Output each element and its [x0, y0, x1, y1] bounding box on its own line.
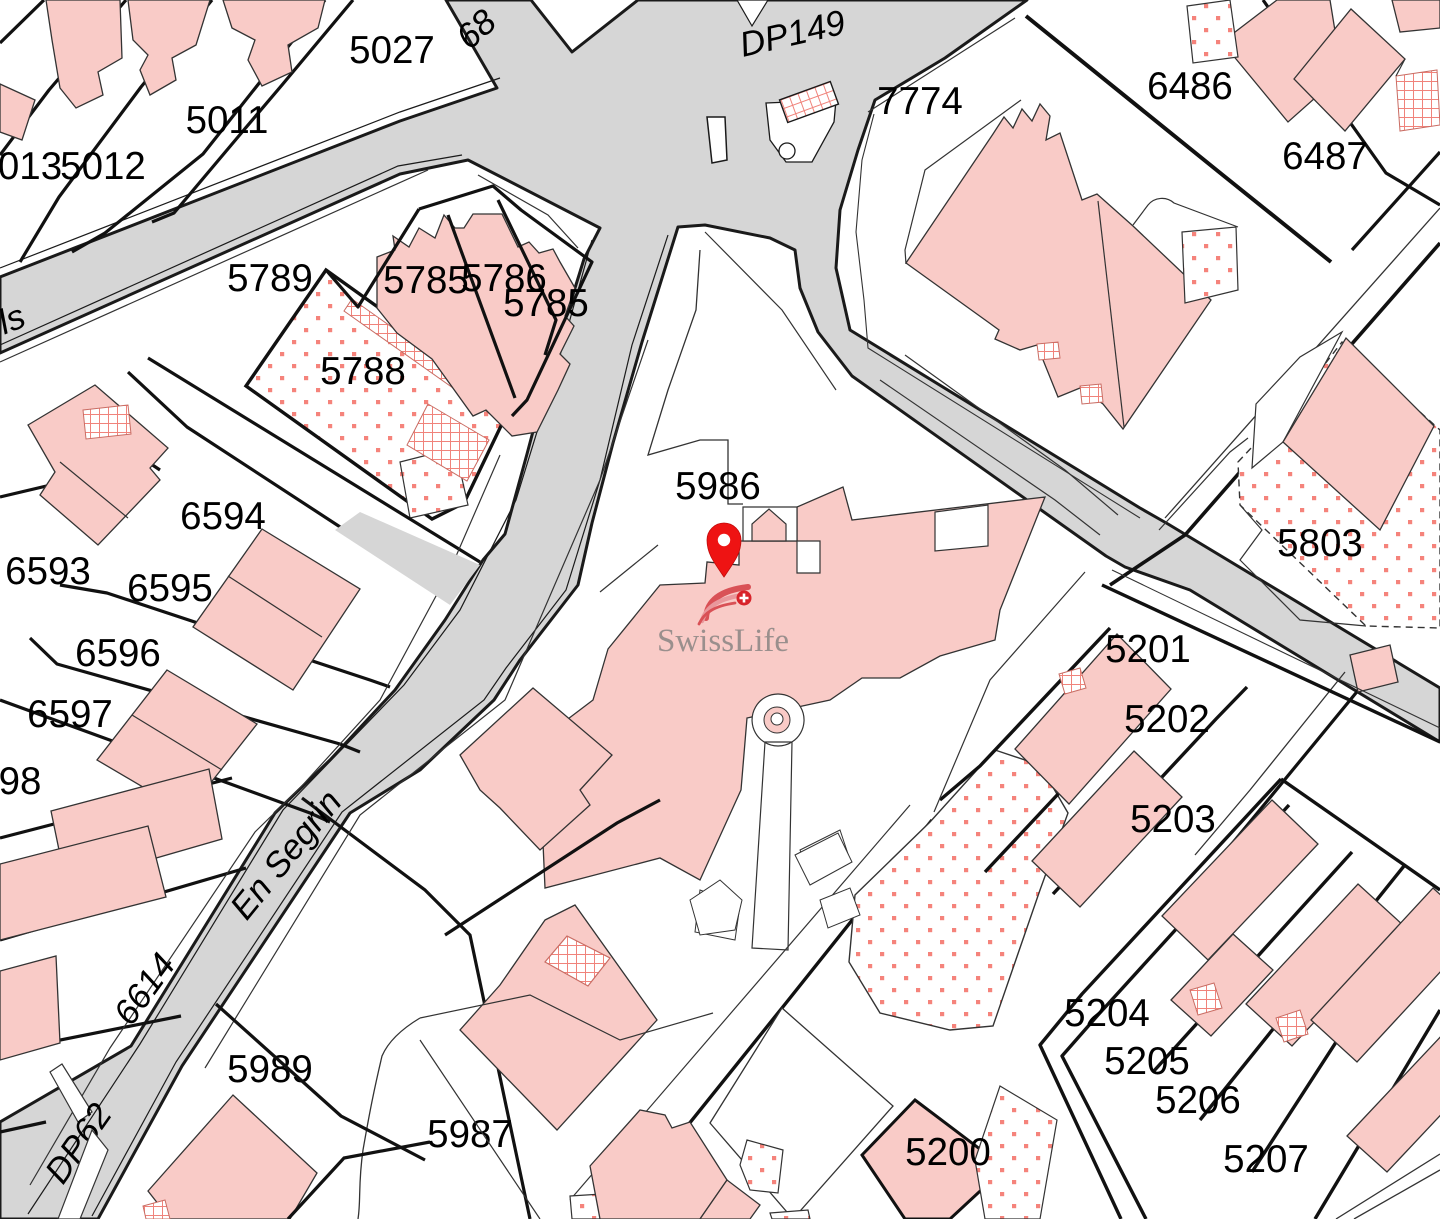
svg-text:98: 98 [0, 760, 41, 803]
svg-text:5204: 5204 [1064, 992, 1150, 1035]
svg-text:5207: 5207 [1223, 1138, 1309, 1181]
svg-text:5202: 5202 [1124, 698, 1210, 741]
svg-text:5789: 5789 [227, 257, 313, 300]
svg-text:6487: 6487 [1282, 135, 1368, 178]
svg-text:5206: 5206 [1155, 1079, 1241, 1122]
svg-text:6595: 6595 [127, 567, 213, 610]
svg-text:5205: 5205 [1104, 1040, 1190, 1083]
svg-text:6593: 6593 [5, 550, 91, 593]
svg-text:5785: 5785 [383, 259, 469, 302]
svg-text:5987: 5987 [427, 1113, 513, 1156]
svg-text:7774: 7774 [877, 80, 963, 123]
svg-text:5027: 5027 [349, 29, 435, 72]
svg-text:6594: 6594 [180, 495, 266, 538]
svg-text:5011: 5011 [186, 99, 269, 142]
svg-text:5012: 5012 [60, 145, 146, 188]
svg-text:5201: 5201 [1105, 628, 1191, 671]
svg-text:5785: 5785 [503, 282, 589, 325]
svg-text:SwissLife: SwissLife [657, 623, 789, 659]
svg-text:5200: 5200 [905, 1131, 991, 1174]
svg-text:5788: 5788 [320, 350, 406, 393]
svg-text:6596: 6596 [75, 632, 161, 675]
svg-text:5803: 5803 [1277, 522, 1363, 565]
svg-text:013: 013 [0, 145, 62, 188]
svg-text:6597: 6597 [27, 693, 113, 736]
svg-text:5203: 5203 [1130, 798, 1216, 841]
svg-text:5986: 5986 [675, 465, 761, 508]
svg-text:6486: 6486 [1147, 65, 1233, 108]
